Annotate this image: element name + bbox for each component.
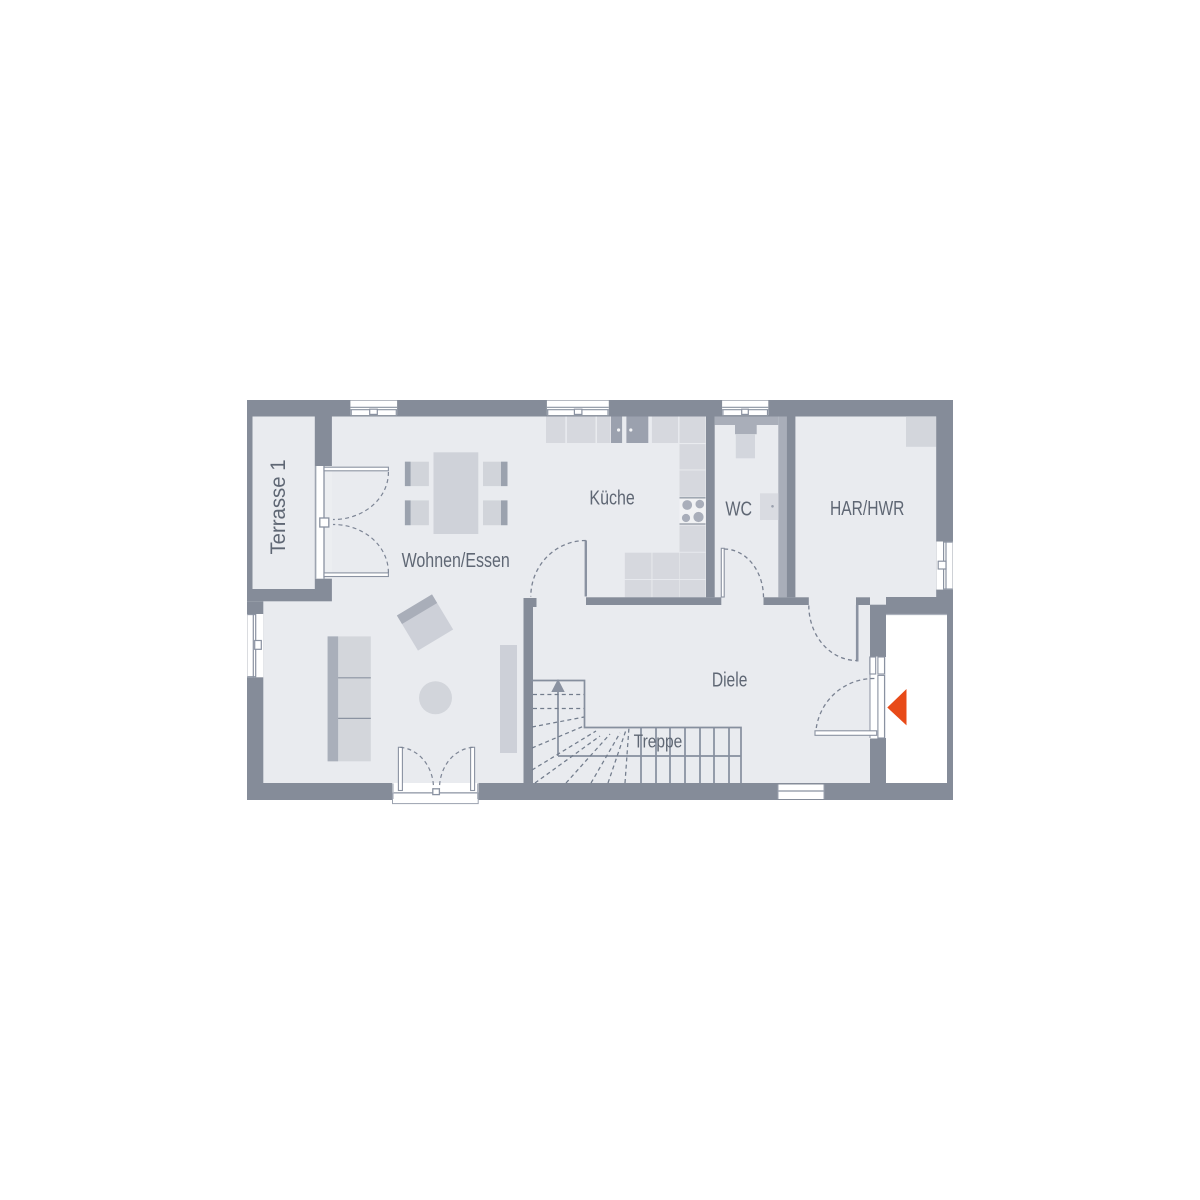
svg-text:HAR/HWR: HAR/HWR: [830, 497, 905, 519]
svg-text:WC: WC: [725, 498, 752, 520]
svg-text:Diele: Diele: [712, 669, 748, 691]
svg-text:Treppe: Treppe: [634, 731, 683, 752]
svg-text:Küche: Küche: [589, 487, 634, 509]
svg-text:Wohnen/Essen: Wohnen/Essen: [402, 550, 510, 572]
svg-text:Terrasse 1: Terrasse 1: [267, 459, 290, 554]
